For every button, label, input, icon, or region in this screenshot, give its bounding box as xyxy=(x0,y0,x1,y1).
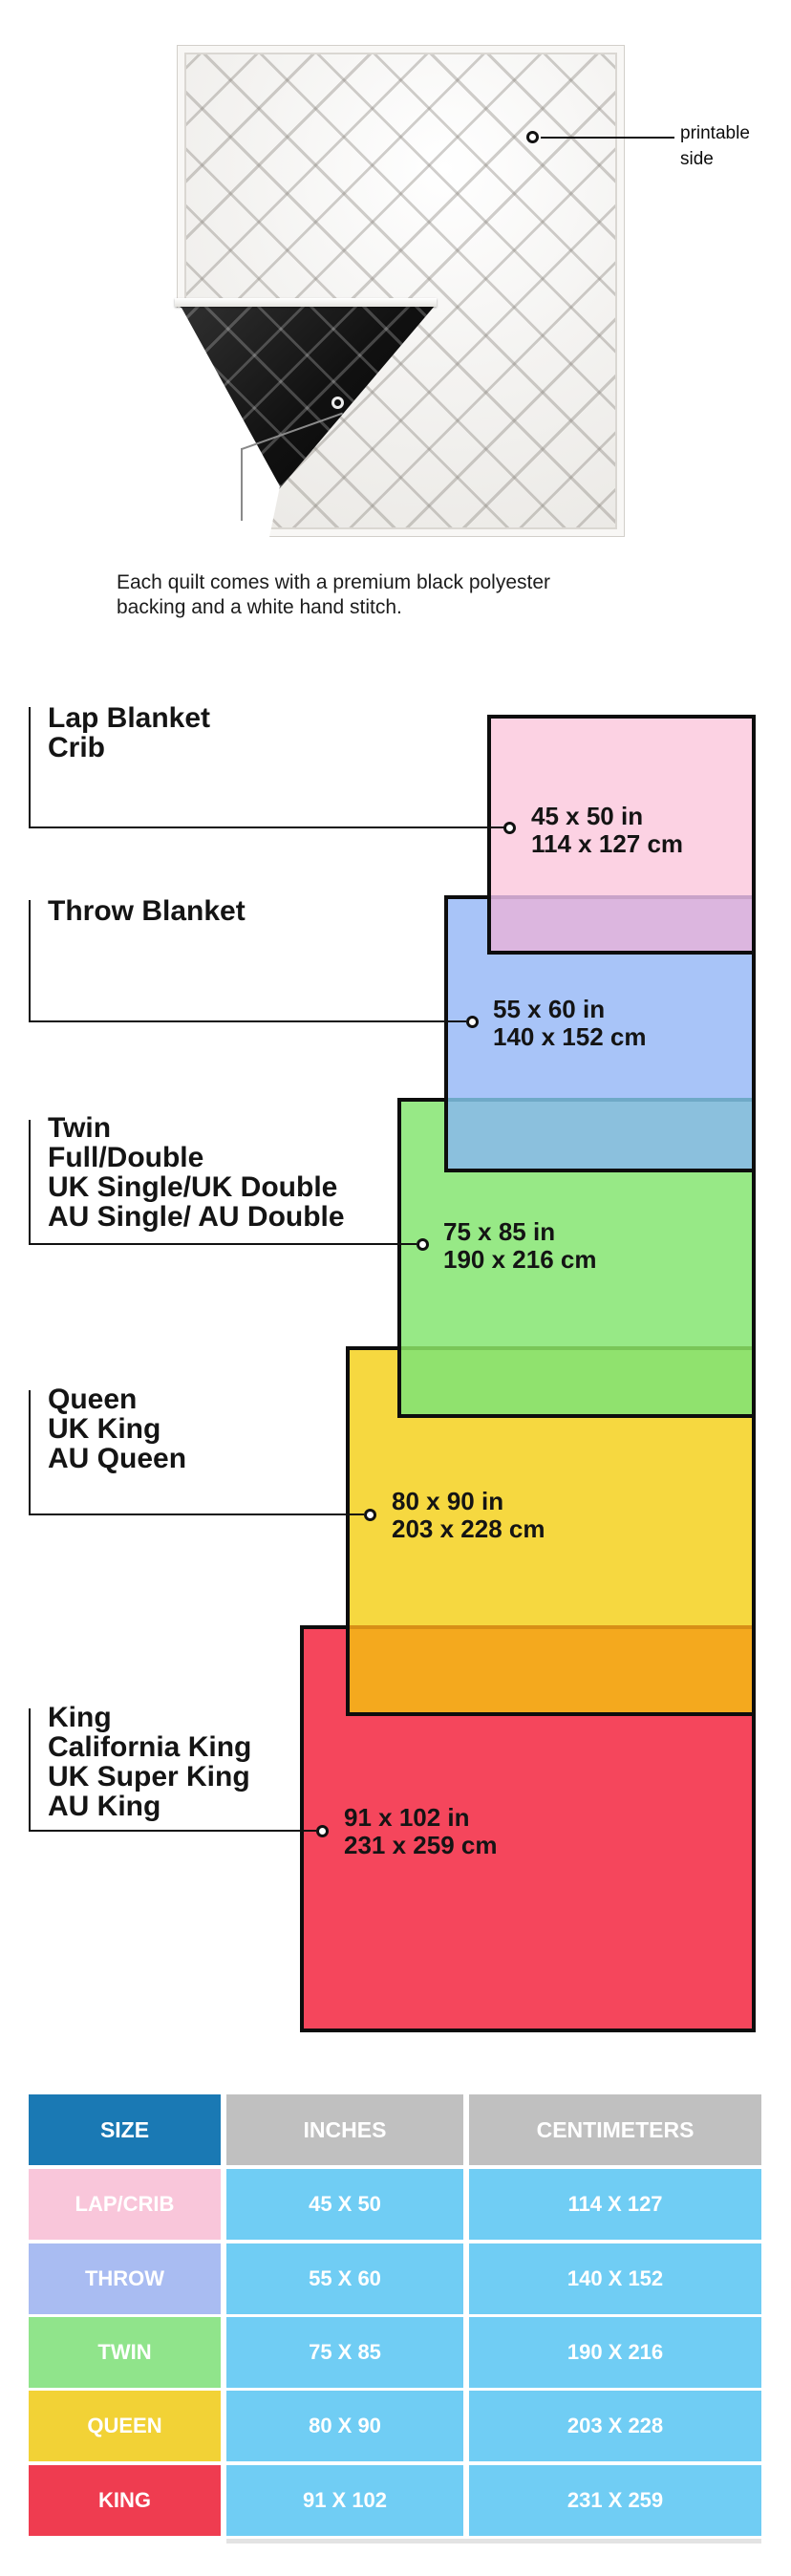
connector-line xyxy=(29,900,31,1022)
quilt-fold-edge xyxy=(175,298,437,307)
table-cell-centimeters: 140 X 152 xyxy=(469,2243,761,2314)
connector-line xyxy=(29,1120,31,1245)
table-cell-inches: 80 X 90 xyxy=(226,2391,463,2461)
table-header-inches: INCHES xyxy=(226,2094,463,2165)
callout-dot-icon xyxy=(503,822,516,834)
overlap-twin-queen xyxy=(401,1346,752,1414)
quilt-caption: Each quilt comes with a premium black po… xyxy=(117,570,550,620)
callout-dot-icon xyxy=(466,1016,479,1028)
callout-dot-icon xyxy=(316,1825,329,1837)
size-callout-king: 91 x 102 in 231 x 259 cm xyxy=(344,1804,497,1859)
size-callout-throw: 55 x 60 in 140 x 152 cm xyxy=(493,996,646,1051)
connector-line xyxy=(29,826,504,828)
table-cell-size: TWIN xyxy=(29,2317,221,2388)
size-label-throw: Throw Blanket xyxy=(48,896,246,926)
connector-line xyxy=(29,1513,364,1515)
callout-dot-icon xyxy=(331,397,344,409)
backing-callout-line xyxy=(241,448,243,521)
table-cell-size: LAP/CRIB xyxy=(29,2169,221,2240)
size-label-queen: Queen UK King AU Queen xyxy=(48,1385,186,1473)
table-cell-inches: 55 X 60 xyxy=(226,2243,463,2314)
table-cell-inches: 45 X 50 xyxy=(226,2169,463,2240)
connector-line xyxy=(29,1390,31,1515)
table-cell-inches: 91 X 102 xyxy=(226,2465,463,2536)
table-cell-inches: 75 X 85 xyxy=(226,2317,463,2388)
printable-callout-line xyxy=(541,137,674,139)
table-cell-centimeters: 231 X 259 xyxy=(469,2465,761,2536)
table-header-centimeters: CENTIMETERS xyxy=(469,2094,761,2165)
table-cell-size: KING xyxy=(29,2465,221,2536)
table-shadow xyxy=(226,2539,761,2544)
table-cell-size: THROW xyxy=(29,2243,221,2314)
connector-line xyxy=(29,1243,417,1245)
size-label-twin: Twin Full/Double UK Single/UK Double AU … xyxy=(48,1113,345,1232)
callout-dot-icon xyxy=(526,131,539,143)
overlap-throw-twin xyxy=(448,1098,752,1169)
table-cell-centimeters: 190 X 216 xyxy=(469,2317,761,2388)
connector-line xyxy=(29,1708,31,1832)
table-cell-centimeters: 114 X 127 xyxy=(469,2169,761,2240)
overlap-queen-king xyxy=(350,1625,752,1712)
size-callout-lap-crib: 45 x 50 in 114 x 127 cm xyxy=(531,803,683,858)
overlap-lap-throw xyxy=(491,895,752,951)
callout-dot-icon xyxy=(417,1238,429,1251)
table-cell-centimeters: 203 X 228 xyxy=(469,2391,761,2461)
size-label-king: King California King UK Super King AU Ki… xyxy=(48,1703,251,1821)
size-guide-infographic: printable side Each quilt comes with a p… xyxy=(0,0,791,2576)
table-header-size: SIZE xyxy=(29,2094,221,2165)
connector-line xyxy=(29,707,31,828)
size-callout-twin: 75 x 85 in 190 x 216 cm xyxy=(443,1218,596,1274)
connector-line xyxy=(29,1830,316,1832)
table-cell-size: QUEEN xyxy=(29,2391,221,2461)
connector-line xyxy=(29,1020,466,1022)
callout-dot-icon xyxy=(364,1509,376,1521)
size-callout-queen: 80 x 90 in 203 x 228 cm xyxy=(392,1488,545,1543)
size-label-lap-crib: Lap Blanket Crib xyxy=(48,703,210,762)
printable-side-label: printable side xyxy=(680,120,750,172)
